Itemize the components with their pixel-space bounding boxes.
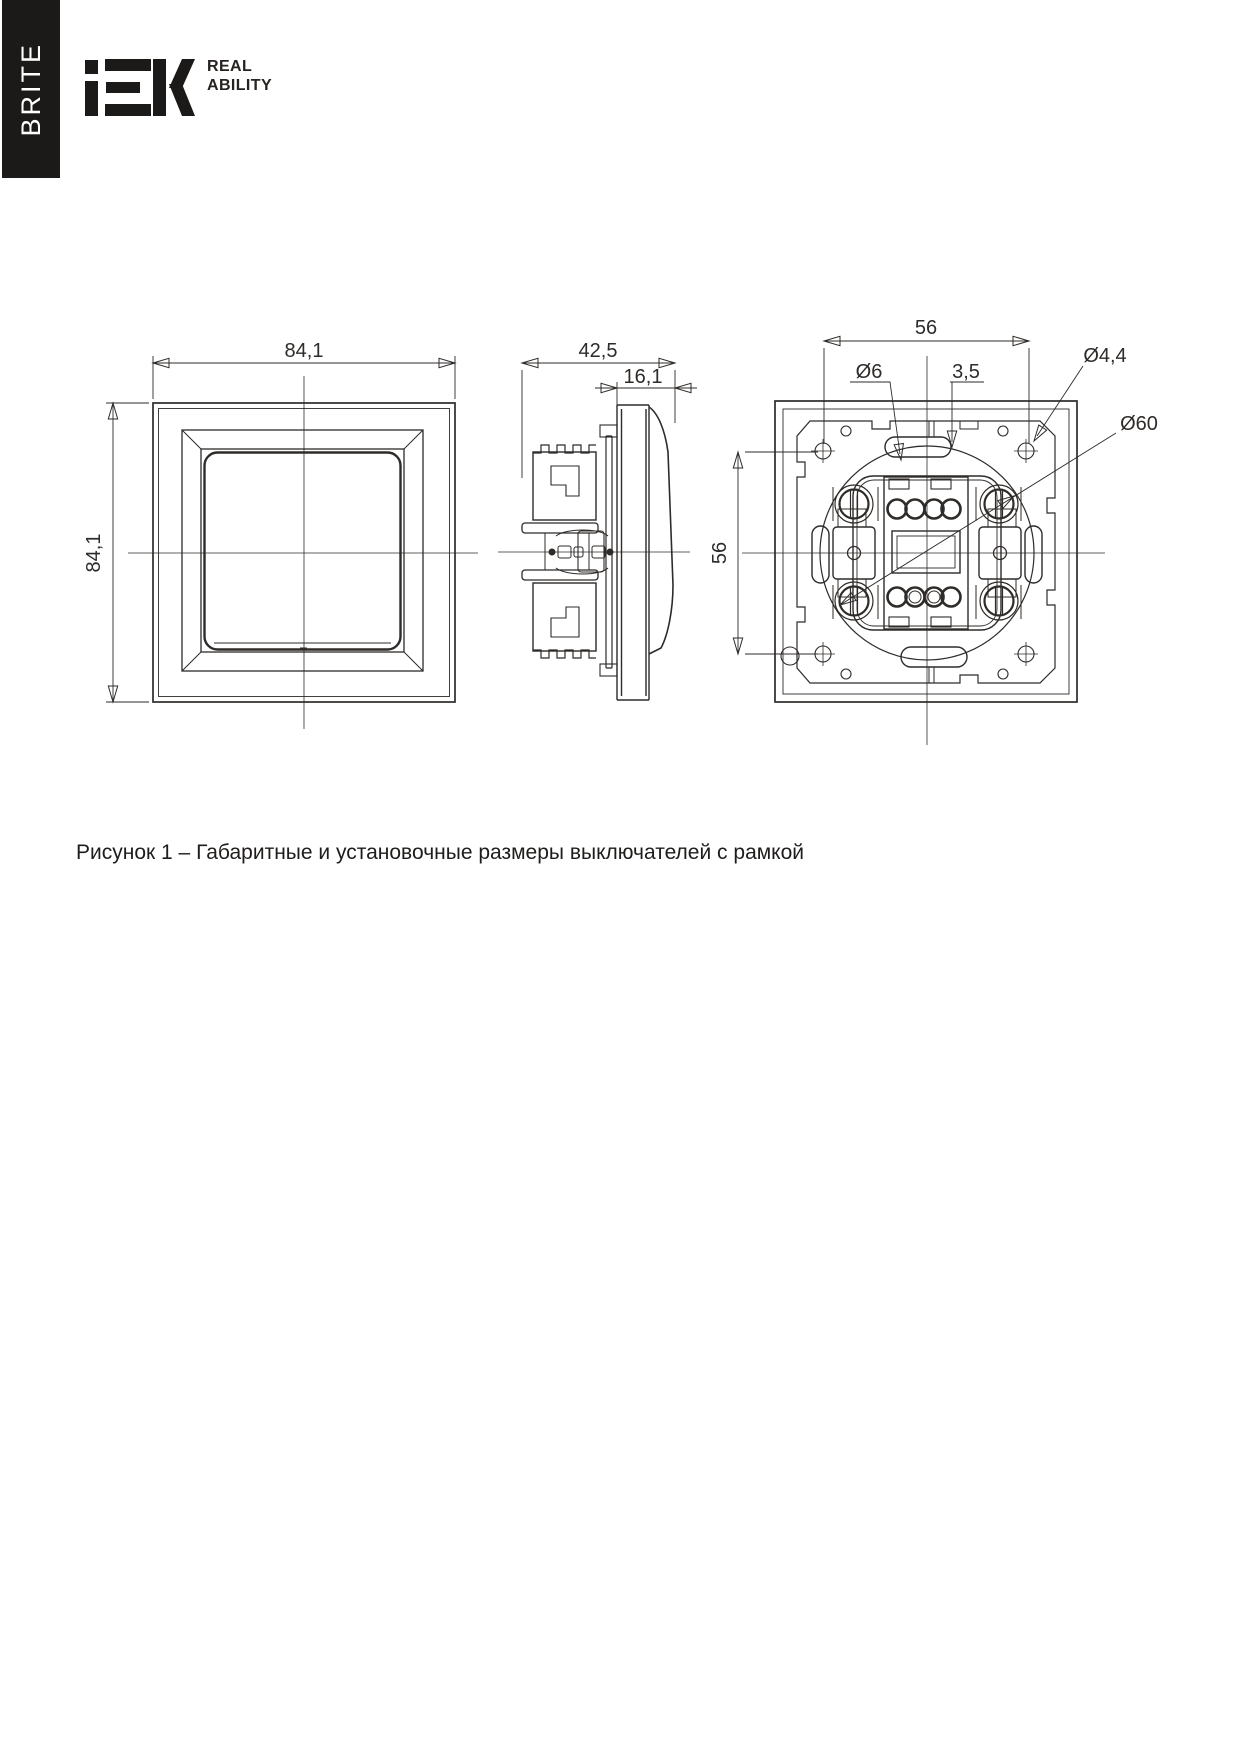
side-view: 42,5 16,1	[498, 340, 697, 700]
rocker-bottom-seam	[214, 643, 391, 648]
slot-bottom	[901, 647, 967, 667]
front-height-label: 84,1	[83, 534, 105, 573]
plate-hole-top-right	[998, 426, 1008, 436]
front-view: 84,1 84,1	[83, 340, 478, 729]
fixing-hole-top-right	[1014, 439, 1038, 463]
support-plate-slits	[929, 421, 978, 683]
slot-width-callout: 3,5	[947, 361, 984, 447]
rocker-outline	[205, 453, 401, 650]
back-view: 56 56 Ø6 3,5	[709, 317, 1158, 745]
side-rocker-profile	[649, 407, 673, 654]
side-bottom-claw	[533, 583, 596, 658]
fixing-hole-callout: Ø4,4	[1030, 345, 1127, 444]
support-plate-outline	[797, 421, 1055, 683]
back-hspacing-label: 56	[915, 317, 937, 339]
side-depth-label: 42,5	[579, 340, 618, 362]
side-frame-plate	[617, 405, 649, 700]
fixing-hole-bottom-right	[1014, 642, 1038, 666]
side-protrusion-label: 16,1	[624, 366, 663, 388]
claw-screw-bottom-right	[980, 582, 1018, 620]
plate-hole-bottom-left	[841, 669, 851, 679]
dimension-drawing: 84,1 84,1	[0, 0, 1241, 820]
plate-hole-top-left	[841, 426, 851, 436]
mount-box-label: Ø60	[1120, 413, 1158, 435]
slot-width-label: 3,5	[952, 361, 980, 383]
plate-hole-bottom-right	[998, 669, 1008, 679]
claw-hole-callout: Ø6	[850, 361, 906, 461]
claw-screw-top-right	[980, 485, 1018, 523]
back-vspacing-label: 56	[709, 542, 731, 564]
front-height-dimension: 84,1	[83, 403, 149, 702]
side-bottom-lug	[600, 664, 617, 676]
bevel-corner-chamfers	[182, 430, 423, 671]
side-top-lug	[600, 425, 617, 437]
side-top-claw	[533, 445, 596, 520]
front-width-label: 84,1	[285, 340, 324, 362]
figure-caption: Рисунок 1 – Габаритные и установочные ра…	[76, 841, 804, 865]
fixing-hole-label: Ø4,4	[1083, 345, 1126, 367]
frame-bevel-outer	[182, 430, 423, 671]
plate-corner-hole	[781, 647, 799, 665]
fixing-hole-top-left	[811, 439, 835, 463]
claw-hole-label: Ø6	[856, 361, 883, 383]
frame-bevel-inner	[201, 449, 404, 652]
datasheet-page: BRITE REAL ABILITY	[0, 0, 1241, 1752]
